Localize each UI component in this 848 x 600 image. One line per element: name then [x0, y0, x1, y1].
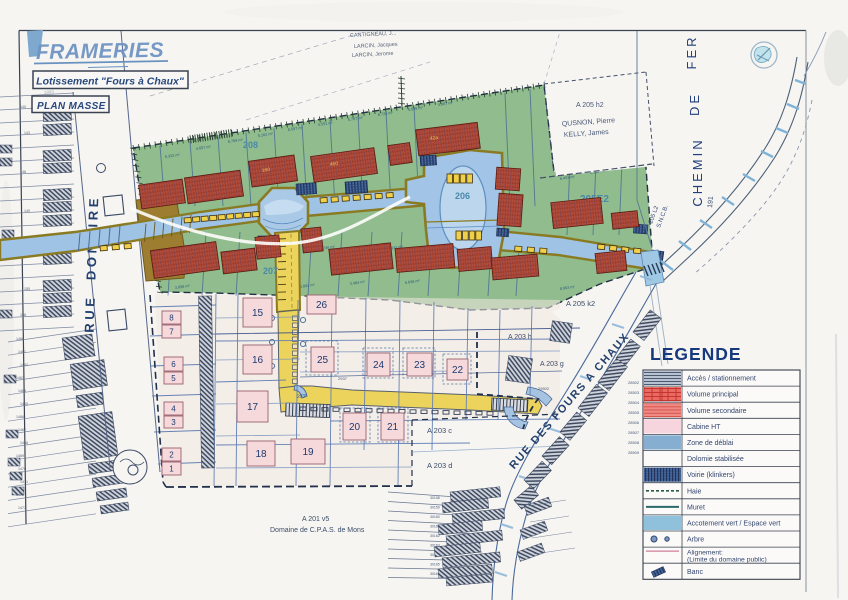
- svg-text:207: 207: [263, 266, 278, 276]
- svg-text:158: 158: [20, 313, 26, 317]
- svg-text:149: 149: [24, 209, 30, 213]
- svg-text:Zone de déblai: Zone de déblai: [687, 440, 734, 447]
- svg-text:30158: 30158: [430, 496, 440, 500]
- svg-text:1470: 1470: [18, 467, 26, 471]
- svg-text:1461: 1461: [18, 350, 26, 354]
- svg-text:1465: 1465: [20, 402, 28, 406]
- svg-text:1993: 1993: [44, 89, 55, 95]
- svg-text:A 201 v5: A 201 v5: [302, 516, 329, 523]
- svg-text:191: 191: [707, 196, 715, 208]
- svg-text:A 205 h2: A 205 h2: [576, 102, 604, 109]
- svg-text:8: 8: [169, 313, 174, 322]
- svg-text:1468: 1468: [20, 441, 28, 445]
- svg-text:FRAMERIES: FRAMERIES: [36, 39, 165, 64]
- svg-text:Dolomie stabilisée: Dolomie stabilisée: [687, 456, 744, 463]
- svg-text:23: 23: [414, 360, 426, 371]
- svg-text:460: 460: [329, 161, 338, 168]
- svg-text:140: 140: [20, 105, 26, 109]
- svg-text:FER: FER: [684, 35, 699, 70]
- svg-text:25: 25: [317, 355, 329, 366]
- svg-text:1467: 1467: [18, 428, 26, 432]
- svg-text:LEGENDE: LEGENDE: [650, 344, 742, 364]
- svg-text:2937: 2937: [338, 376, 348, 381]
- svg-text:28505: 28505: [628, 410, 640, 415]
- svg-text:1463: 1463: [16, 376, 24, 380]
- svg-text:146: 146: [20, 170, 26, 174]
- svg-text:Muret: Muret: [687, 504, 705, 511]
- svg-text:4: 4: [171, 404, 176, 413]
- svg-text:Accotement vert / Espace vert: Accotement vert / Espace vert: [687, 520, 780, 527]
- svg-text:Volume principal: Volume principal: [687, 392, 739, 399]
- svg-text:A 205 k2: A 205 k2: [566, 299, 595, 308]
- svg-text:26: 26: [316, 300, 328, 311]
- svg-text:DE: DE: [687, 92, 702, 116]
- svg-text:30160: 30160: [430, 515, 440, 519]
- svg-text:20: 20: [349, 422, 361, 433]
- svg-text:Domaine de C.P.A.S. de Mons: Domaine de C.P.A.S. de Mons: [270, 527, 365, 534]
- svg-text:Cabine HT: Cabine HT: [687, 424, 721, 431]
- svg-text:42a: 42a: [429, 135, 438, 142]
- svg-text:Haie: Haie: [687, 488, 702, 495]
- svg-text:28509: 28509: [628, 450, 640, 455]
- svg-text:1: 1: [169, 464, 174, 473]
- svg-text:Accès / stationnement: Accès / stationnement: [687, 376, 756, 383]
- svg-text:A 203 d: A 203 d: [427, 461, 452, 470]
- svg-text:CHEMIN: CHEMIN: [690, 137, 705, 206]
- svg-text:28504: 28504: [628, 400, 640, 405]
- svg-text:30159: 30159: [430, 506, 440, 510]
- svg-text:A 203 h: A 203 h: [508, 334, 532, 341]
- svg-text:21: 21: [387, 422, 399, 433]
- svg-text:1466: 1466: [16, 415, 24, 419]
- svg-text:206: 206: [455, 191, 470, 201]
- svg-text:22: 22: [452, 365, 464, 376]
- svg-text:Volume secondaire: Volume secondaire: [687, 408, 747, 415]
- svg-text:2: 2: [169, 450, 174, 459]
- svg-text:1464: 1464: [18, 389, 26, 393]
- svg-text:208: 208: [243, 140, 258, 150]
- svg-text:1472: 1472: [16, 493, 24, 497]
- svg-text:15: 15: [252, 308, 264, 319]
- svg-text:29502: 29502: [538, 386, 550, 391]
- svg-text:Banc: Banc: [687, 569, 703, 576]
- svg-text:1469: 1469: [16, 454, 24, 458]
- svg-text:7: 7: [169, 327, 174, 336]
- svg-text:A 203 g: A 203 g: [540, 361, 564, 368]
- svg-text:155: 155: [24, 287, 30, 291]
- svg-text:A 203 c: A 203 c: [427, 426, 452, 435]
- svg-text:28503: 28503: [628, 390, 640, 395]
- svg-text:Arbre: Arbre: [687, 537, 704, 544]
- svg-text:28506: 28506: [628, 420, 640, 425]
- svg-text:19: 19: [302, 447, 314, 458]
- svg-text:3: 3: [171, 418, 176, 427]
- svg-text:1471: 1471: [20, 480, 28, 484]
- svg-text:18: 18: [255, 449, 267, 460]
- svg-text:160: 160: [261, 167, 270, 174]
- svg-text:28502: 28502: [628, 380, 640, 385]
- svg-text:6: 6: [171, 360, 176, 369]
- svg-text:17: 17: [247, 402, 259, 413]
- svg-text:5: 5: [171, 374, 176, 383]
- svg-text:24: 24: [373, 360, 385, 371]
- svg-text:28508: 28508: [628, 440, 640, 445]
- svg-text:203f: 203f: [297, 393, 308, 400]
- svg-text:(Limite du domaine public): (Limite du domaine public): [687, 556, 767, 563]
- svg-text:28507: 28507: [628, 430, 640, 435]
- svg-text:Voirie (klinkers): Voirie (klinkers): [687, 472, 735, 479]
- svg-text:Lotissement "Fours à Chaux": Lotissement "Fours à Chaux": [36, 76, 185, 88]
- svg-text:30162: 30162: [430, 534, 440, 538]
- svg-text:16: 16: [252, 355, 264, 366]
- svg-text:30165: 30165: [430, 563, 440, 567]
- svg-text:143: 143: [24, 131, 30, 135]
- svg-text:1460: 1460: [16, 337, 24, 341]
- svg-text:1473: 1473: [18, 506, 26, 510]
- svg-text:1462: 1462: [20, 363, 28, 367]
- svg-text:PLAN MASSE: PLAN MASSE: [37, 101, 106, 112]
